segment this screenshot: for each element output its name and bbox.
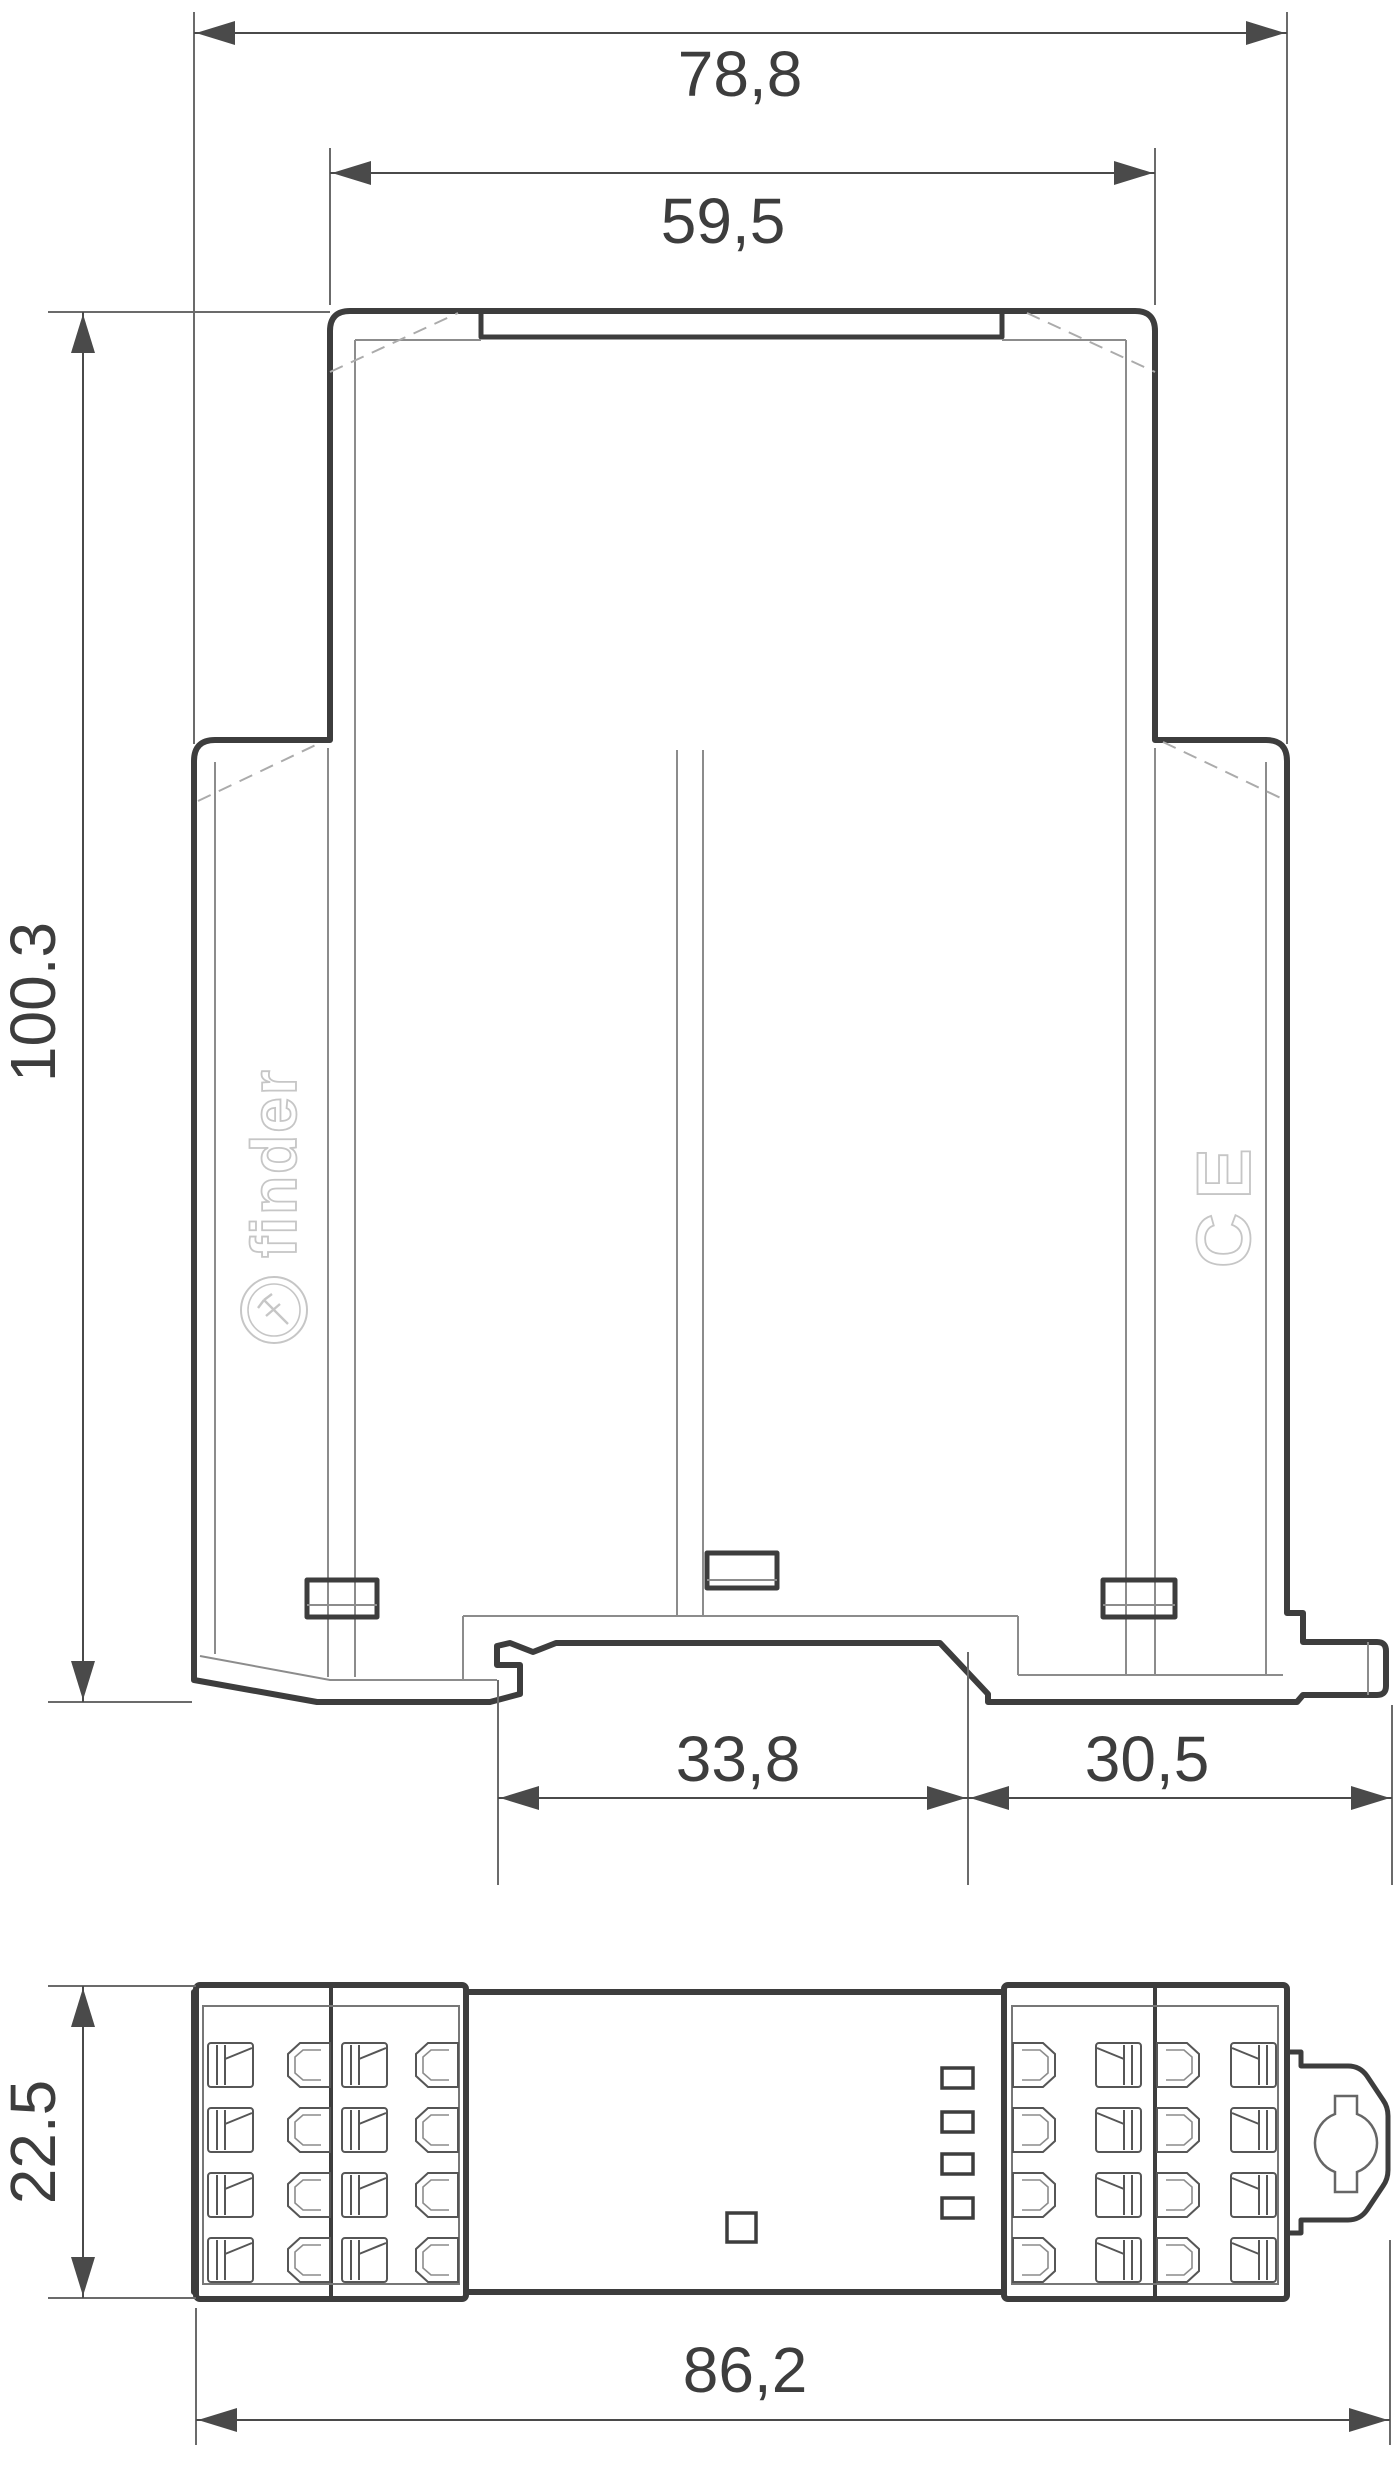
- indicator-window: [942, 2198, 973, 2218]
- dim-upper-width-label: 59,5: [661, 185, 786, 257]
- dim-depth: 22.5: [0, 1986, 196, 2298]
- dim-depth-label: 22.5: [0, 2080, 69, 2205]
- ce-mark-text: CE: [1182, 1134, 1267, 1268]
- indicator-window: [942, 2068, 973, 2088]
- din-clip-keyhole: [1315, 2096, 1377, 2192]
- indicator-window: [942, 2154, 973, 2174]
- finder-logo-text: finder: [238, 1068, 310, 1258]
- dim-din-notch-label: 33,8: [676, 1723, 801, 1795]
- side-view: finder CE: [194, 311, 1386, 1702]
- module-body-outline: [194, 311, 1386, 1702]
- dim-height-label: 100.3: [0, 922, 69, 1082]
- drawing-page: finder CE 78,8: [0, 0, 1400, 2476]
- dim-overall-length-label: 86,2: [683, 2334, 808, 2406]
- bottom-view: [194, 1985, 1388, 2299]
- center-window: [727, 2213, 756, 2242]
- dim-foot-right-label: 30,5: [1085, 1723, 1210, 1795]
- dim-din-notch: 33,8: [498, 1652, 968, 1885]
- dim-upper-width: 59,5: [330, 148, 1155, 305]
- dim-foot-right: 30,5: [968, 1705, 1392, 1885]
- indicator-window: [942, 2112, 973, 2132]
- ce-mark: CE: [1182, 1134, 1267, 1268]
- technical-drawing: finder CE 78,8: [0, 0, 1400, 2476]
- dim-overall-width-label: 78,8: [678, 38, 803, 110]
